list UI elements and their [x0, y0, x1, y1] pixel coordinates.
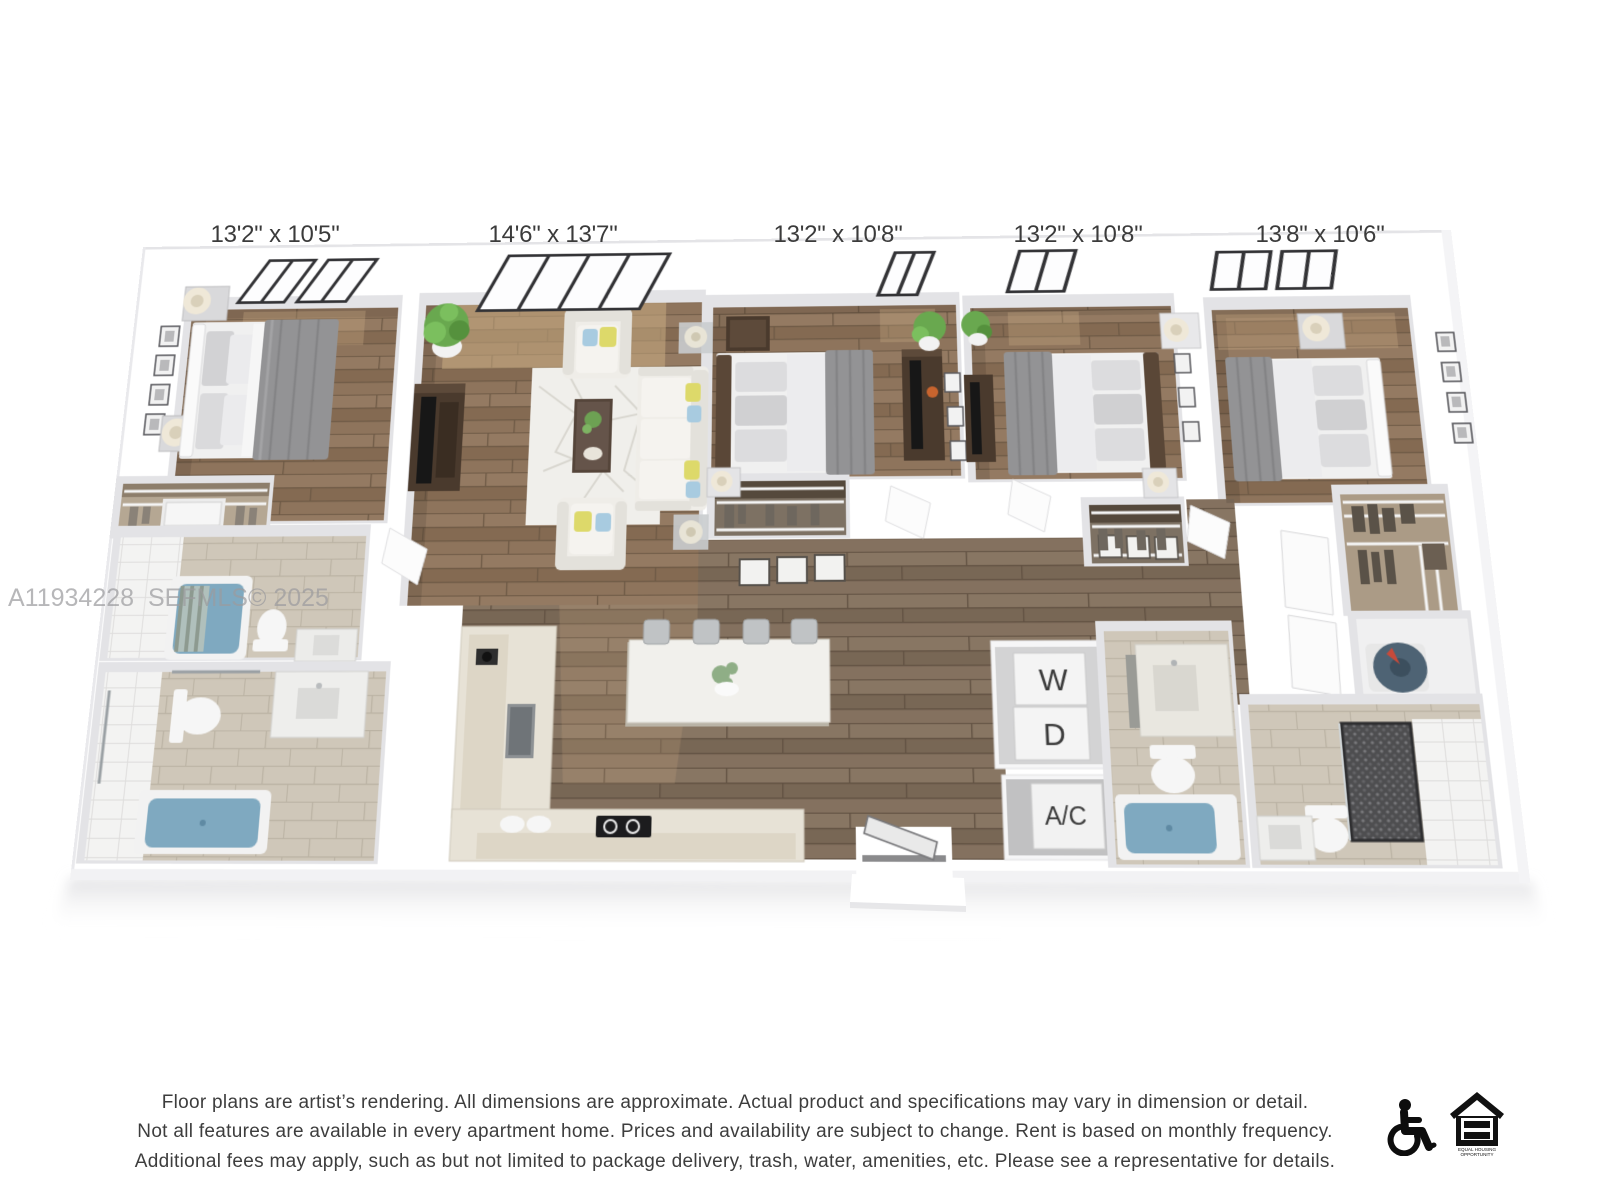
svg-text:OPPORTUNITY: OPPORTUNITY	[1460, 1152, 1493, 1157]
